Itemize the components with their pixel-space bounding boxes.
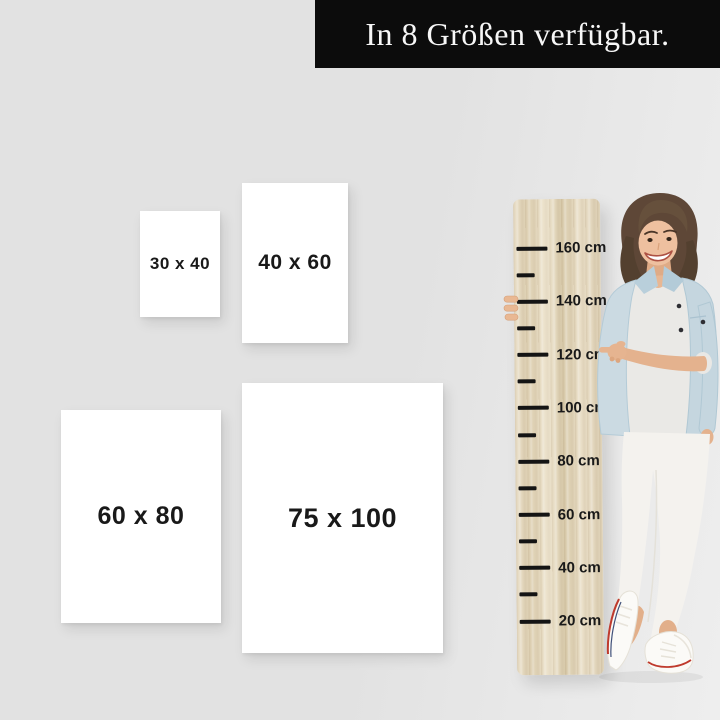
tick-label: 20 cm xyxy=(559,612,602,629)
tick-mark xyxy=(519,593,537,597)
tick-mark xyxy=(518,459,549,463)
tick-mark xyxy=(519,539,537,543)
tick-mark xyxy=(517,326,535,330)
tick-mark xyxy=(519,513,550,517)
banner-text: In 8 Größen verfügbar. xyxy=(365,16,669,53)
tick-label: 160 cm xyxy=(555,239,606,256)
height-ruler-plank: 160 cm140 cm120 cm100 cm80 cm60 cm40 cm2… xyxy=(513,199,604,676)
tick-label: 40 cm xyxy=(558,559,601,576)
person-neck xyxy=(645,258,673,285)
size-box-75x100: 75 x 100 xyxy=(242,383,443,653)
ruler-tick-major: 120 cm xyxy=(517,346,607,364)
size-label: 75 x 100 xyxy=(288,503,397,534)
pointing-hand xyxy=(599,341,712,374)
person-jacket xyxy=(598,266,718,445)
tick-mark xyxy=(518,433,536,437)
size-label: 60 x 80 xyxy=(98,502,185,531)
ruler-tick-major: 140 cm xyxy=(517,292,607,310)
ruler-tick-minor xyxy=(517,326,535,330)
tick-mark xyxy=(518,406,549,410)
banner: In 8 Größen verfügbar. xyxy=(315,0,720,68)
size-box-40x60: 40 x 60 xyxy=(242,183,348,343)
ruler-tick-major: 80 cm xyxy=(518,452,600,470)
person-hair xyxy=(620,193,698,291)
person-pants xyxy=(615,432,710,642)
ruler-tick-major: 160 cm xyxy=(516,239,606,257)
size-label: 40 x 60 xyxy=(258,251,332,275)
ruler-ticks: 160 cm140 cm120 cm100 cm80 cm60 cm40 cm2… xyxy=(513,199,604,676)
person-ankle xyxy=(659,620,677,644)
ruler-tick-minor xyxy=(518,379,536,383)
size-label: 30 x 40 xyxy=(150,254,210,274)
ruler-tick-minor xyxy=(519,593,537,597)
tick-label: 120 cm xyxy=(556,346,607,363)
ground-shadow xyxy=(599,671,703,683)
size-box-30x40: 30 x 40 xyxy=(140,211,220,317)
ruler-tick-major: 60 cm xyxy=(519,506,601,524)
ruler-tick-major: 100 cm xyxy=(518,399,608,417)
tick-mark xyxy=(520,619,551,623)
person-ankle xyxy=(620,606,644,646)
tick-mark xyxy=(517,273,535,277)
product-image-canvas: In 8 Größen verfügbar. 30 x 40 40 x 60 6… xyxy=(0,0,720,720)
person-shoes xyxy=(608,591,693,673)
tick-label: 80 cm xyxy=(557,452,600,469)
size-box-60x80: 60 x 80 xyxy=(61,410,221,623)
ruler-tick-minor xyxy=(517,273,535,277)
tick-label: 140 cm xyxy=(556,292,607,309)
tick-mark xyxy=(519,566,550,570)
tick-mark xyxy=(517,299,548,303)
ruler-tick-minor xyxy=(519,539,537,543)
tick-label: 60 cm xyxy=(558,506,601,523)
ruler-tick-major: 40 cm xyxy=(519,559,601,577)
ruler-tick-major: 20 cm xyxy=(520,612,602,630)
tick-mark xyxy=(518,379,536,383)
tick-mark xyxy=(519,486,537,490)
tick-label: 100 cm xyxy=(557,399,608,416)
tick-mark xyxy=(517,353,548,357)
ruler-tick-minor xyxy=(519,486,537,490)
tick-mark xyxy=(516,246,547,250)
person-face xyxy=(639,200,688,266)
ruler-tick-minor xyxy=(518,433,536,437)
